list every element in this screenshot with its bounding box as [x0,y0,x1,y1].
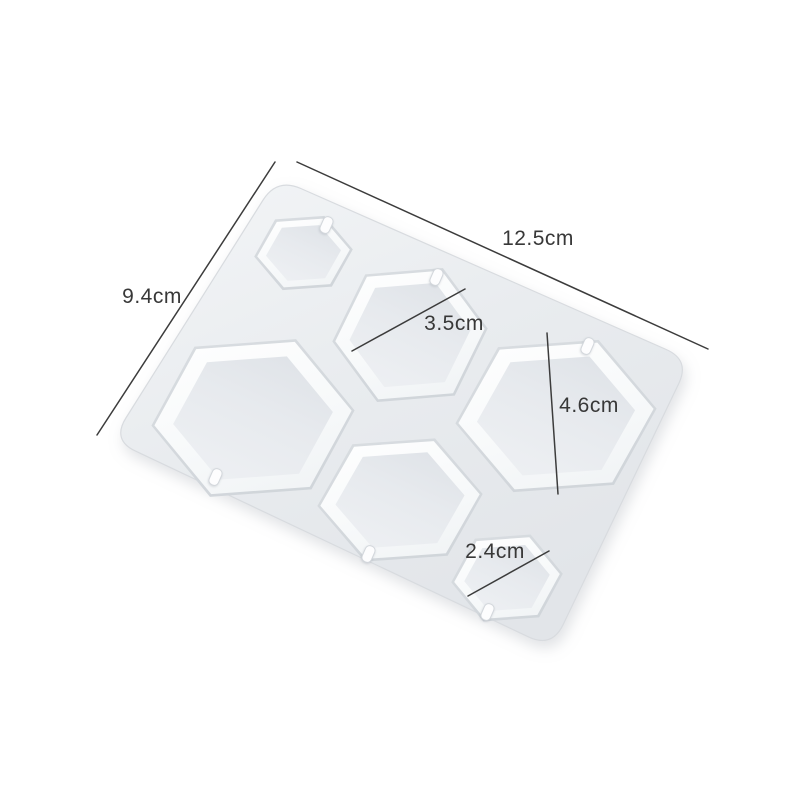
hexagon-cavity-large-left [151,331,355,505]
dimension-label-overall-height: 9.4cm [122,285,182,309]
product-photo: 12.5cm 9.4cm 3.5cm 4.6cm 2.4cm [0,0,800,800]
cavity-rim [257,215,350,291]
hexagon-cavity-large-right [455,332,657,500]
dimension-label-overall-width: 12.5cm [502,227,574,251]
dimension-label-small-hexagon: 2.4cm [465,540,525,564]
cavity-floor [266,222,341,284]
cavity-rim [458,335,654,497]
cavity-floor [173,350,333,486]
hexagon-cavity-medium-bottom [317,432,483,568]
dimension-label-medium-hexagon: 3.5cm [424,312,484,336]
cavity-rim [154,334,352,502]
cavity-rim [320,435,480,565]
cavity-floor [335,447,465,552]
dimension-label-large-hexagon: 4.6cm [559,394,619,418]
hexagon-cavity-small-top [254,212,353,294]
